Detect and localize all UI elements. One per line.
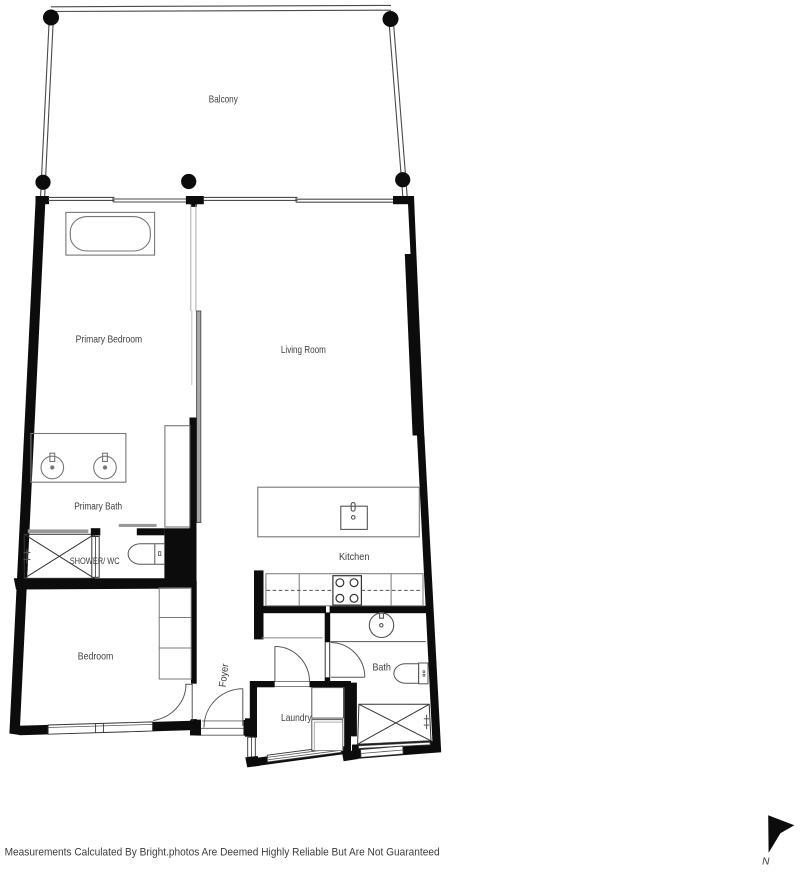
svg-text:Primary Bath: Primary Bath <box>74 501 122 512</box>
svg-text:Foyer: Foyer <box>218 663 232 688</box>
svg-text:Measurements Calculated By Bri: Measurements Calculated By Bright.photos… <box>5 846 440 858</box>
svg-text:N: N <box>762 856 770 867</box>
svg-text:Balcony: Balcony <box>209 94 239 105</box>
svg-text:Living Room: Living Room <box>281 345 326 356</box>
svg-text:Bath: Bath <box>372 663 391 674</box>
svg-text:Primary Bedroom: Primary Bedroom <box>76 334 143 345</box>
svg-text:Kitchen: Kitchen <box>339 552 370 563</box>
svg-text:SHOWER/ WC: SHOWER/ WC <box>70 556 120 567</box>
svg-text:Bedroom: Bedroom <box>78 651 114 662</box>
svg-text:Laundry: Laundry <box>281 713 312 724</box>
